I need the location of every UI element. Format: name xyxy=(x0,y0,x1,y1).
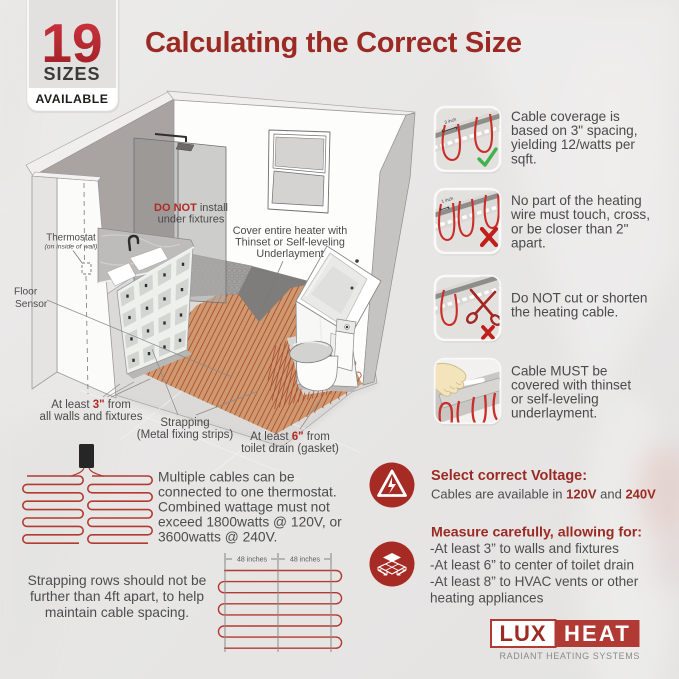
svg-text:yielding 12/watts per: yielding 12/watts per xyxy=(511,137,635,152)
svg-text:Strapping: Strapping xyxy=(160,417,209,429)
svg-text:all walls and fixtures: all walls and fixtures xyxy=(40,411,143,423)
svg-text:or self-leveling: or self-leveling xyxy=(511,392,599,407)
svg-text:HEAT: HEAT xyxy=(564,621,631,646)
svg-text:Measure carefully, allowing fo: Measure carefully, allowing for: xyxy=(431,525,642,541)
svg-text:-At least 6” to center of toil: -At least 6” to center of toilet drain xyxy=(430,558,634,573)
svg-text:Sensor: Sensor xyxy=(15,299,48,310)
svg-text:wire must touch, cross,: wire must touch, cross, xyxy=(510,207,650,222)
svg-text:Thinset or Self-leveling: Thinset or Self-leveling xyxy=(235,237,345,249)
svg-text:underlayment.: underlayment. xyxy=(511,406,597,421)
svg-text:maintain cable spacing.: maintain cable spacing. xyxy=(45,605,189,620)
svg-text:Cover entire heater with: Cover entire heater with xyxy=(233,225,348,237)
svg-text:Select correct Voltage:: Select correct Voltage: xyxy=(431,468,587,484)
svg-text:exceed 1800watts @ 120V, or: exceed 1800watts @ 120V, or xyxy=(158,515,342,530)
svg-text:connected to one thermostat.: connected to one thermostat. xyxy=(158,485,337,500)
svg-text:Cables are available in 120V a: Cables are available in 120V and 240V xyxy=(431,487,656,502)
svg-text:sqft.: sqft. xyxy=(511,151,537,166)
svg-text:(on inside of wall): (on inside of wall) xyxy=(45,244,98,251)
svg-text:covered with thinset: covered with thinset xyxy=(511,377,631,392)
svg-text:At least 6" from: At least 6" from xyxy=(250,431,330,443)
svg-text:Strapping rows should not be: Strapping rows should not be xyxy=(28,573,207,588)
svg-text:At least 3" from: At least 3" from xyxy=(51,399,131,411)
svg-text:(Metal fixing strips): (Metal fixing strips) xyxy=(137,429,234,441)
svg-text:Cable MUST be: Cable MUST be xyxy=(511,363,607,378)
svg-text:Floor: Floor xyxy=(14,287,38,298)
svg-text:further than 4ft apart, to hel: further than 4ft apart, to help xyxy=(30,589,204,604)
svg-text:Combined wattage must not: Combined wattage must not xyxy=(158,500,330,515)
svg-text:No part of the heating: No part of the heating xyxy=(511,193,642,208)
svg-text:-At least 8” to HVAC vents or: -At least 8” to HVAC vents or other xyxy=(430,574,639,589)
svg-text:RADIANT HEATING SYSTEMS: RADIANT HEATING SYSTEMS xyxy=(500,651,641,661)
svg-text:Underlayment: Underlayment xyxy=(256,248,323,260)
svg-text:Calculating the Correct Size: Calculating the Correct Size xyxy=(145,27,522,59)
svg-text:toilet drain (gasket): toilet drain (gasket) xyxy=(241,443,339,455)
svg-text:Cable coverage is: Cable coverage is xyxy=(511,109,620,124)
svg-text:the heating cable.: the heating cable. xyxy=(511,304,618,319)
svg-text:Do NOT cut or shorten: Do NOT cut or shorten xyxy=(511,290,648,305)
svg-text:apart.: apart. xyxy=(511,235,546,250)
svg-text:48 inches: 48 inches xyxy=(290,557,320,564)
svg-text:48 inches: 48 inches xyxy=(237,557,267,564)
svg-text:DO NOT install: DO NOT install xyxy=(154,202,228,214)
svg-text:SIZES: SIZES xyxy=(43,64,100,84)
svg-text:or be closer than 2": or be closer than 2" xyxy=(511,221,629,236)
svg-text:Multiple cables can be: Multiple cables can be xyxy=(158,470,295,485)
svg-text:heating appliances: heating appliances xyxy=(430,591,544,606)
svg-text:Thermostat: Thermostat xyxy=(46,233,96,244)
svg-text:based on 3" spacing,: based on 3" spacing, xyxy=(511,123,638,138)
svg-text:under fixtures: under fixtures xyxy=(158,214,225,226)
svg-text:-At least 3” to walls and fixt: -At least 3” to walls and fixtures xyxy=(430,541,619,556)
svg-text:LUX: LUX xyxy=(500,621,547,646)
svg-text:3600watts @ 240V.: 3600watts @ 240V. xyxy=(158,530,277,545)
svg-text:AVAILABLE: AVAILABLE xyxy=(35,92,108,106)
